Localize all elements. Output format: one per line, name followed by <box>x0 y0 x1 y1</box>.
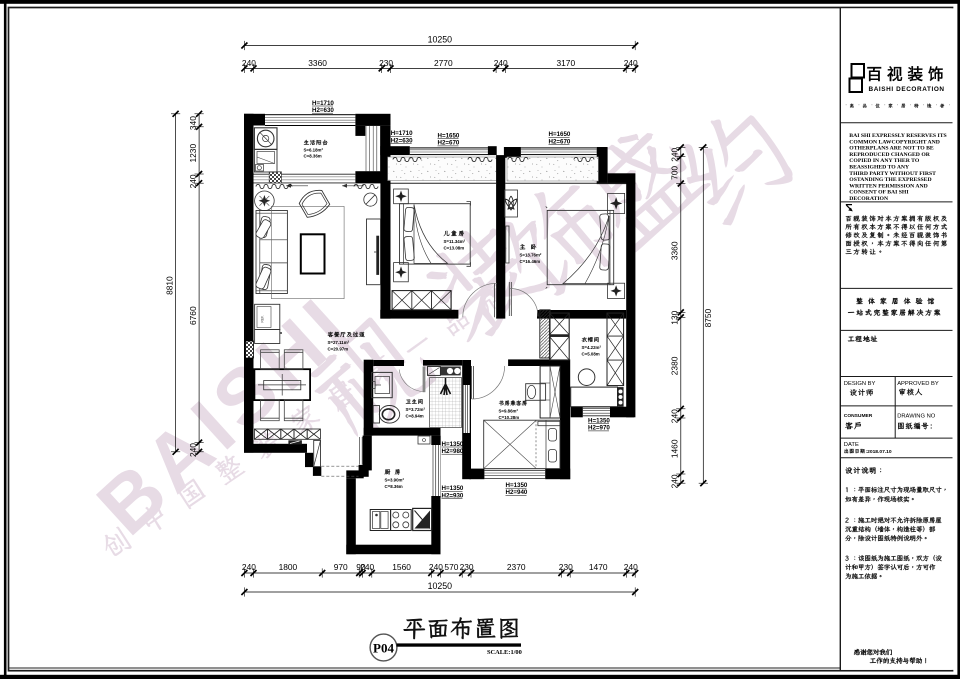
svg-text:1460: 1460 <box>670 439 680 458</box>
svg-text:H2=670: H2=670 <box>549 138 571 145</box>
svg-text:C=5.08m: C=5.08m <box>582 352 600 357</box>
svg-text:S=3.72m²: S=3.72m² <box>406 407 426 412</box>
svg-text:240: 240 <box>494 58 508 68</box>
svg-text:COPIED IN ANY THER TO: COPIED IN ANY THER TO <box>849 158 920 164</box>
svg-text:1470: 1470 <box>589 562 608 572</box>
svg-text:240: 240 <box>242 58 256 68</box>
svg-text:240: 240 <box>429 562 443 572</box>
svg-text:REF.: REF. <box>261 315 265 322</box>
svg-text::: : <box>930 422 932 431</box>
svg-text:APPROVED BY: APPROVED BY <box>897 381 939 387</box>
svg-text:S=11.34m²: S=11.34m² <box>444 239 466 244</box>
svg-text:OTHERPLANS ARE NOT TO BE: OTHERPLANS ARE NOT TO BE <box>849 146 934 152</box>
svg-text:S=13.76m²: S=13.76m² <box>520 253 542 258</box>
svg-text:CONSENT OF BAI SHI: CONSENT OF BAI SHI <box>849 190 909 196</box>
svg-text:C=8.94m: C=8.94m <box>406 414 424 419</box>
svg-text:2770: 2770 <box>434 58 453 68</box>
svg-text:OSTANDING THE EXPRESSED: OSTANDING THE EXPRESSED <box>849 177 931 183</box>
svg-text:WRITTEN PERMISSION AND: WRITTEN PERMISSION AND <box>849 183 927 189</box>
svg-text:240: 240 <box>670 147 680 161</box>
svg-text:S=9.86m²: S=9.86m² <box>499 409 519 414</box>
svg-text:S=3.90m²: S=3.90m² <box>385 478 405 483</box>
svg-text:230: 230 <box>559 562 573 572</box>
svg-text:S=27.11m²: S=27.11m² <box>328 340 350 345</box>
svg-text:DATE: DATE <box>844 442 859 448</box>
svg-text:240: 240 <box>624 562 638 572</box>
svg-text:230: 230 <box>460 562 474 572</box>
svg-text:SCALE:1/00: SCALE:1/00 <box>487 649 522 656</box>
svg-text:3360: 3360 <box>308 58 327 68</box>
svg-text:REPRODUCED CHANGED OR: REPRODUCED CHANGED OR <box>849 152 930 158</box>
svg-text:700: 700 <box>670 166 680 180</box>
svg-text:10250: 10250 <box>428 581 453 591</box>
svg-text:10250: 10250 <box>428 35 453 45</box>
svg-text:BAISHI DECORATION: BAISHI DECORATION <box>869 86 945 93</box>
svg-text:3170: 3170 <box>556 58 575 68</box>
svg-text:3360: 3360 <box>670 241 680 260</box>
svg-text::2018.07.10: :2018.07.10 <box>866 449 892 455</box>
svg-text:1230: 1230 <box>188 144 198 163</box>
svg-text:230: 230 <box>379 58 393 68</box>
svg-text:CONSUMER: CONSUMER <box>844 413 873 419</box>
svg-text:C=13.08m: C=13.08m <box>444 246 465 251</box>
svg-text:240: 240 <box>670 409 680 423</box>
svg-text:C=10.28m: C=10.28m <box>499 415 520 420</box>
svg-text:8750: 8750 <box>703 308 713 327</box>
svg-text:THIRD PARTY WITHOUT FIRST: THIRD PARTY WITHOUT FIRST <box>849 171 936 177</box>
svg-text:C=20.97m: C=20.97m <box>328 347 349 352</box>
svg-text:COMMON LAWCOPYRIGHT AND: COMMON LAWCOPYRIGHT AND <box>849 139 940 145</box>
svg-text:130: 130 <box>670 310 680 324</box>
svg-text:S=4.22m²: S=4.22m² <box>582 345 602 350</box>
svg-text:240: 240 <box>188 174 198 188</box>
svg-text:C=16.46m: C=16.46m <box>520 259 541 264</box>
svg-text:570: 570 <box>444 562 458 572</box>
svg-text:1800: 1800 <box>279 562 298 572</box>
svg-text:340: 340 <box>188 116 198 130</box>
svg-text:BEASSIGHED TO ANY: BEASSIGHED TO ANY <box>849 165 909 171</box>
svg-text:DECORATION: DECORATION <box>849 196 889 202</box>
svg-text:2370: 2370 <box>507 562 526 572</box>
svg-text:2380: 2380 <box>670 356 680 375</box>
svg-text:240: 240 <box>360 562 374 572</box>
svg-text:C=8.36m: C=8.36m <box>385 484 403 489</box>
svg-text:8810: 8810 <box>165 276 175 295</box>
svg-text:P04: P04 <box>373 640 394 655</box>
svg-text:DRAWING NO: DRAWING NO <box>897 414 936 420</box>
svg-text:C=8.36m: C=8.36m <box>304 154 322 159</box>
svg-text:240: 240 <box>670 474 680 488</box>
svg-text:240: 240 <box>624 58 638 68</box>
svg-text:1560: 1560 <box>392 562 411 572</box>
svg-text:BAI SHI EXPRESSLY RESERVES ITS: BAI SHI EXPRESSLY RESERVES ITS <box>849 133 946 139</box>
svg-text:S=6.18m²: S=6.18m² <box>304 148 324 153</box>
svg-text:240: 240 <box>242 562 256 572</box>
svg-text:DESIGN BY: DESIGN BY <box>844 381 876 387</box>
svg-text:6760: 6760 <box>188 306 198 325</box>
svg-text:H2=630: H2=630 <box>391 137 413 144</box>
svg-text:970: 970 <box>334 562 348 572</box>
svg-text:240: 240 <box>188 443 198 457</box>
